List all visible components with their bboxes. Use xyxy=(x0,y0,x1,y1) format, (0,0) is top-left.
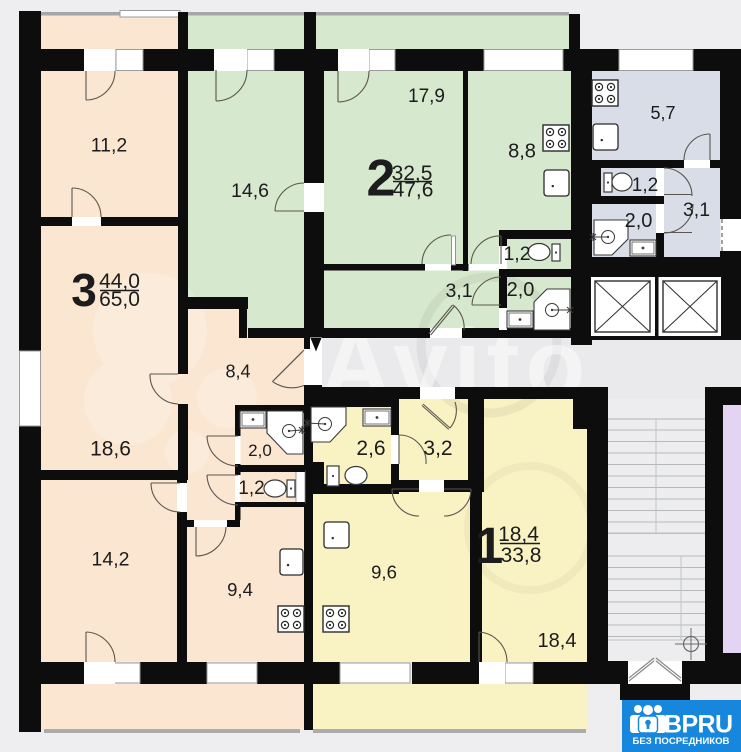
svg-text:8,4: 8,4 xyxy=(225,362,250,382)
svg-text:14,6: 14,6 xyxy=(231,180,269,202)
svg-text:18,4: 18,4 xyxy=(498,523,539,546)
svg-text:2,0: 2,0 xyxy=(507,279,535,301)
svg-text:3,2: 3,2 xyxy=(423,437,452,460)
svg-text:1,2: 1,2 xyxy=(632,175,658,196)
svg-text:1,2: 1,2 xyxy=(503,243,530,265)
svg-text:2,0: 2,0 xyxy=(625,210,653,232)
svg-text:9,6: 9,6 xyxy=(371,562,397,583)
svg-text:9,4: 9,4 xyxy=(227,579,253,600)
svg-text:3: 3 xyxy=(71,264,97,316)
svg-text:2,0: 2,0 xyxy=(248,441,272,460)
svg-text:14,2: 14,2 xyxy=(92,549,130,571)
svg-text:BPRU: BPRU xyxy=(664,711,732,739)
svg-text:БЕЗ ПОСРЕДНИКОВ: БЕЗ ПОСРЕДНИКОВ xyxy=(633,736,730,747)
svg-text:3,1: 3,1 xyxy=(445,280,472,302)
svg-text:8,8: 8,8 xyxy=(508,141,536,163)
svg-text:17,9: 17,9 xyxy=(408,86,445,107)
svg-text:18,6: 18,6 xyxy=(90,438,131,461)
svg-text:3,1: 3,1 xyxy=(683,199,710,221)
svg-text:65,0: 65,0 xyxy=(99,288,140,311)
svg-text:18,4: 18,4 xyxy=(538,630,577,652)
svg-text:1,2: 1,2 xyxy=(238,478,264,499)
svg-text:2,6: 2,6 xyxy=(356,437,385,460)
svg-text:11,2: 11,2 xyxy=(91,135,128,157)
svg-text:33,8: 33,8 xyxy=(501,544,542,567)
svg-text:5,7: 5,7 xyxy=(650,103,675,123)
